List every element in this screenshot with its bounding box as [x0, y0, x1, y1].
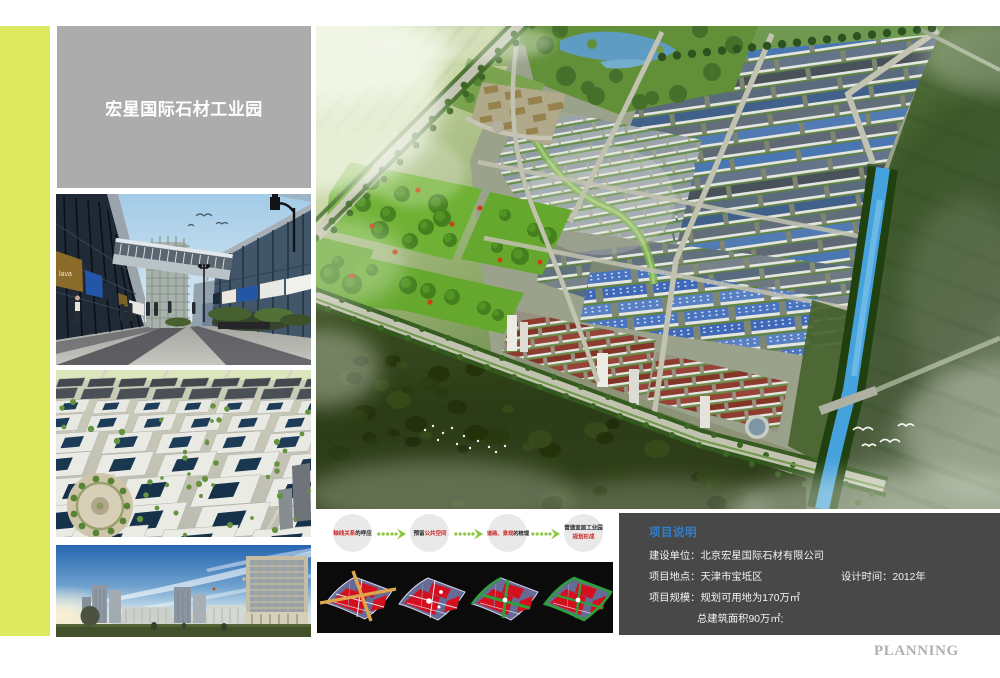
- svg-text:lava: lava: [59, 271, 72, 278]
